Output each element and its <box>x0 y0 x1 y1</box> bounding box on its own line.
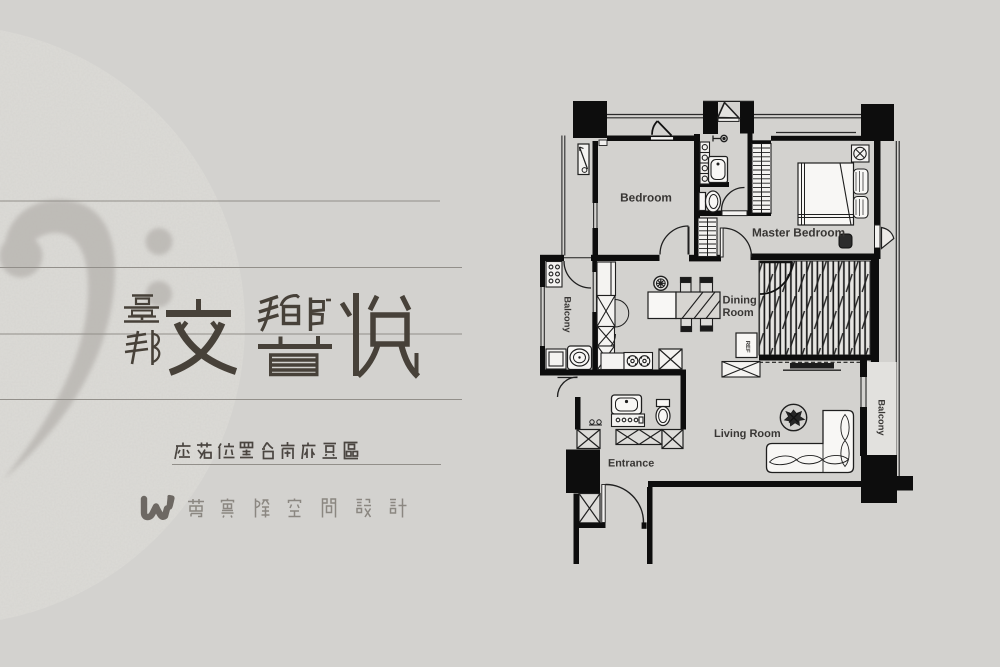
svg-text:REF: REF <box>744 341 751 353</box>
svg-text:Balcony: Balcony <box>563 296 573 333</box>
svg-text:Room: Room <box>723 307 754 319</box>
svg-text:Balcony: Balcony <box>877 399 887 436</box>
svg-text:Entrance: Entrance <box>608 458 654 470</box>
svg-text:Living Room: Living Room <box>714 428 781 440</box>
svg-text:Dining: Dining <box>723 295 757 307</box>
svg-text:Master Bedroom: Master Bedroom <box>752 226 845 240</box>
svg-text:Bedroom: Bedroom <box>620 191 672 205</box>
